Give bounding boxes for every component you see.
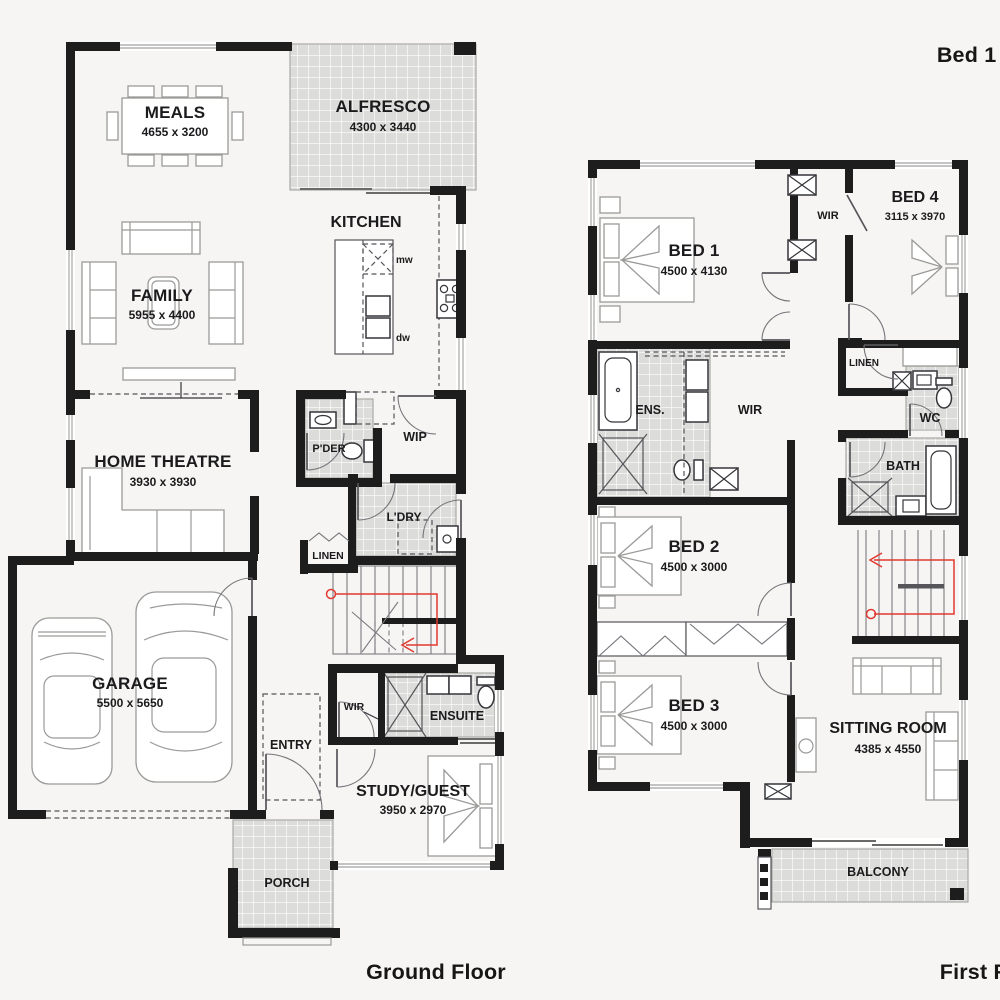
first-floor-plan: BED 1 4500 x 4130 WIR BED 4 3115 x 3970 … (588, 160, 968, 909)
bed1-dim: 4500 x 4130 (661, 264, 728, 278)
porch-label: PORCH (264, 876, 309, 890)
meals-label: MEALS (145, 103, 206, 122)
bed3-dim: 4500 x 3000 (661, 719, 728, 733)
microwave-label: mw (396, 255, 413, 266)
home-theatre-dim: 3930 x 3930 (130, 475, 197, 489)
bed4-label: BED 4 (891, 189, 938, 206)
kitchen-label: KITCHEN (330, 214, 401, 231)
family-label: FAMILY (131, 286, 193, 305)
bed3-label: BED 3 (668, 696, 719, 715)
bed4-dim: 3115 x 3970 (885, 211, 946, 223)
bath-vanity (896, 496, 926, 516)
ground-floor-title: Ground Floor (366, 960, 506, 984)
bath-tub (926, 446, 956, 514)
sitting-sofa (853, 658, 941, 694)
ff-linen-label: LINEN (849, 358, 879, 369)
bed1-label: BED 1 (668, 241, 719, 260)
wc-toilet (936, 378, 952, 408)
ensuite-label: ENSUITE (430, 709, 484, 723)
sitting-room-label: SITTING ROOM (829, 720, 946, 737)
linen-bifold (309, 533, 349, 541)
porch-step (243, 938, 331, 945)
wir-bed1-label: WIR (738, 403, 762, 417)
study-guest-dim: 3950 x 2970 (380, 803, 447, 817)
wc-label: WC (920, 411, 941, 425)
study-slider (458, 739, 495, 743)
robe-strip (597, 622, 787, 656)
bed2-dim: 4500 x 3000 (661, 560, 728, 574)
powder-label: P'DER (312, 443, 345, 455)
linen-label: LINEN (312, 550, 344, 562)
top-right-title: Bed 1 Rear (937, 43, 1000, 67)
powder-basin (310, 412, 336, 428)
bed3-bed (597, 661, 681, 769)
laundry-label: L'DRY (386, 510, 421, 524)
wir-hall-label: WIR (817, 210, 838, 222)
ff-staircase (858, 530, 954, 636)
ground-floor-plan: MEALS 4655 x 3200 ALFRESCO 4300 x 3440 K… (8, 42, 504, 945)
wir-label: WIR (344, 701, 365, 713)
garage-door-line (46, 811, 230, 818)
study-guest-label: STUDY/GUEST (356, 783, 470, 800)
bed4-bed (912, 236, 958, 296)
gf-ensuite-toilet (477, 677, 495, 708)
kitchen-island (335, 240, 393, 354)
porch-floor (233, 820, 333, 928)
alfresco-dim: 4300 x 3440 (350, 120, 417, 134)
powder-room-floor (305, 399, 373, 478)
wir-hall-door (847, 195, 867, 231)
garage-label: GARAGE (92, 674, 168, 693)
pantry-label: WIP (403, 430, 427, 444)
first-floor-title: First Floor (940, 960, 1000, 984)
wc-basin (913, 371, 937, 389)
dishwasher-label: dw (396, 333, 410, 344)
balcony-pillars (758, 857, 771, 909)
meals-dim: 4655 x 3200 (142, 125, 209, 139)
garage-dim: 5500 x 5650 (97, 696, 164, 710)
bed2-label: BED 2 (668, 537, 719, 556)
floor-plan-drawing: MEALS 4655 x 3200 ALFRESCO 4300 x 3440 K… (0, 0, 1000, 1000)
family-dim: 5955 x 4400 (129, 308, 196, 322)
gf-ensuite-vanity (427, 676, 471, 694)
home-theatre-label: HOME THEATRE (94, 452, 231, 471)
hall-cabinet (796, 718, 816, 772)
ff-ensuite-bathtub (599, 352, 637, 430)
sink (366, 296, 390, 316)
laundry-trough (437, 526, 458, 552)
ff-ensuite-label: ENS. (635, 403, 664, 417)
ff-ensuite-toilet (674, 460, 703, 480)
sitting-room-dim: 4385 x 4550 (855, 742, 922, 756)
alfresco-area (290, 44, 476, 190)
alfresco-label: ALFRESCO (335, 97, 430, 116)
gf-staircase (327, 566, 459, 654)
entry-label: ENTRY (270, 738, 313, 752)
floor-plan-page: MEALS 4655 x 3200 ALFRESCO 4300 x 3440 K… (0, 0, 1000, 1000)
bed2-bed (597, 507, 681, 608)
alfresco-corner-pier (454, 42, 476, 55)
balcony-label: BALCONY (847, 865, 909, 879)
bath-label: BATH (886, 459, 920, 473)
family-sofas (82, 222, 243, 344)
